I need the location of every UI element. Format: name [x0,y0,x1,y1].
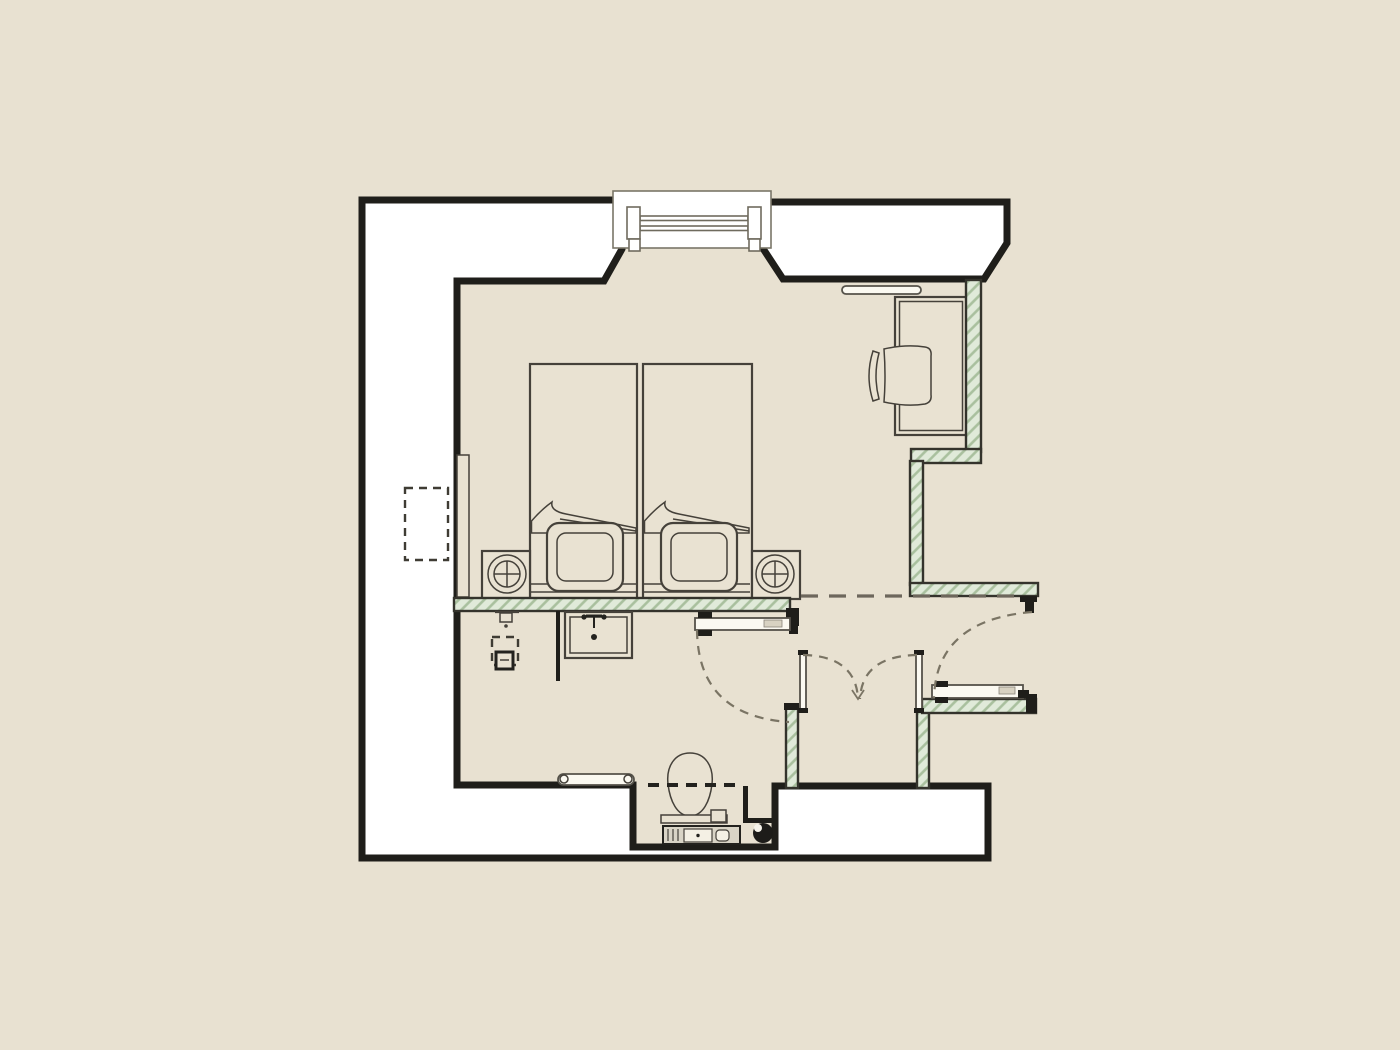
bench-outline [457,455,469,597]
wall-light-body [500,613,512,622]
window-jamb-foot-left [629,239,640,251]
wall-entry-arm-upper [910,583,1038,596]
bathroom-door-hinge-top [698,612,712,618]
desk-chair-seat [884,346,931,405]
counter-partition [556,611,560,681]
sink-outline [565,612,632,658]
nightstand-right [752,551,800,599]
wall-shower-left [786,708,798,788]
grab-bar [558,774,634,785]
shower-door-leaf-left [800,653,806,711]
shower-wall-cap [784,703,799,710]
bench [457,455,469,597]
nightstand-left [482,551,530,599]
entry-door-hinge-top [935,681,948,687]
bathroom-door-label-chip [764,620,782,627]
entry-door-hinge-bottom [935,697,948,703]
niche-return-wall-v [743,786,748,822]
wall-entry-vertical [910,461,923,585]
entry-door-strike [1018,690,1029,698]
sink-tap-right [601,614,606,619]
nightstand-left-outline [482,551,530,599]
window-jamb-right [748,207,761,239]
niche-return-wall-h [743,818,775,823]
sink-tap-left [581,614,586,619]
nightstand-right-outline [752,551,800,599]
twin-bed-left [530,364,637,599]
floor-plan-canvas [0,0,1400,1050]
window-jamb-left [627,207,640,239]
window [613,191,771,251]
wall-shelf [842,286,921,294]
wall-top-right [762,202,1007,279]
wall-right-vertical [966,280,981,452]
floor-drain-highlight [754,824,762,832]
wall-light-dot [504,624,508,628]
window-glazing-bar-outer [640,216,748,221]
shower-leaf-left-cap-bottom [798,708,808,713]
cistern-button [696,834,699,837]
wall-shower-right [917,710,929,788]
window-glazing-bar-inner [640,226,748,231]
shower-door-leaf-right [916,653,922,711]
window-jamb-foot-right [749,239,760,251]
cistern-valve [716,830,729,841]
sink-drain [591,634,597,640]
toilet-side-box [711,810,726,822]
wall-headboard [454,598,790,611]
entry-door-label-chip [999,687,1015,694]
twin-bed-right [643,364,752,599]
bathroom-door-hinge-bottom [698,630,712,636]
shower-leaf-right-cap-bottom [914,708,924,713]
